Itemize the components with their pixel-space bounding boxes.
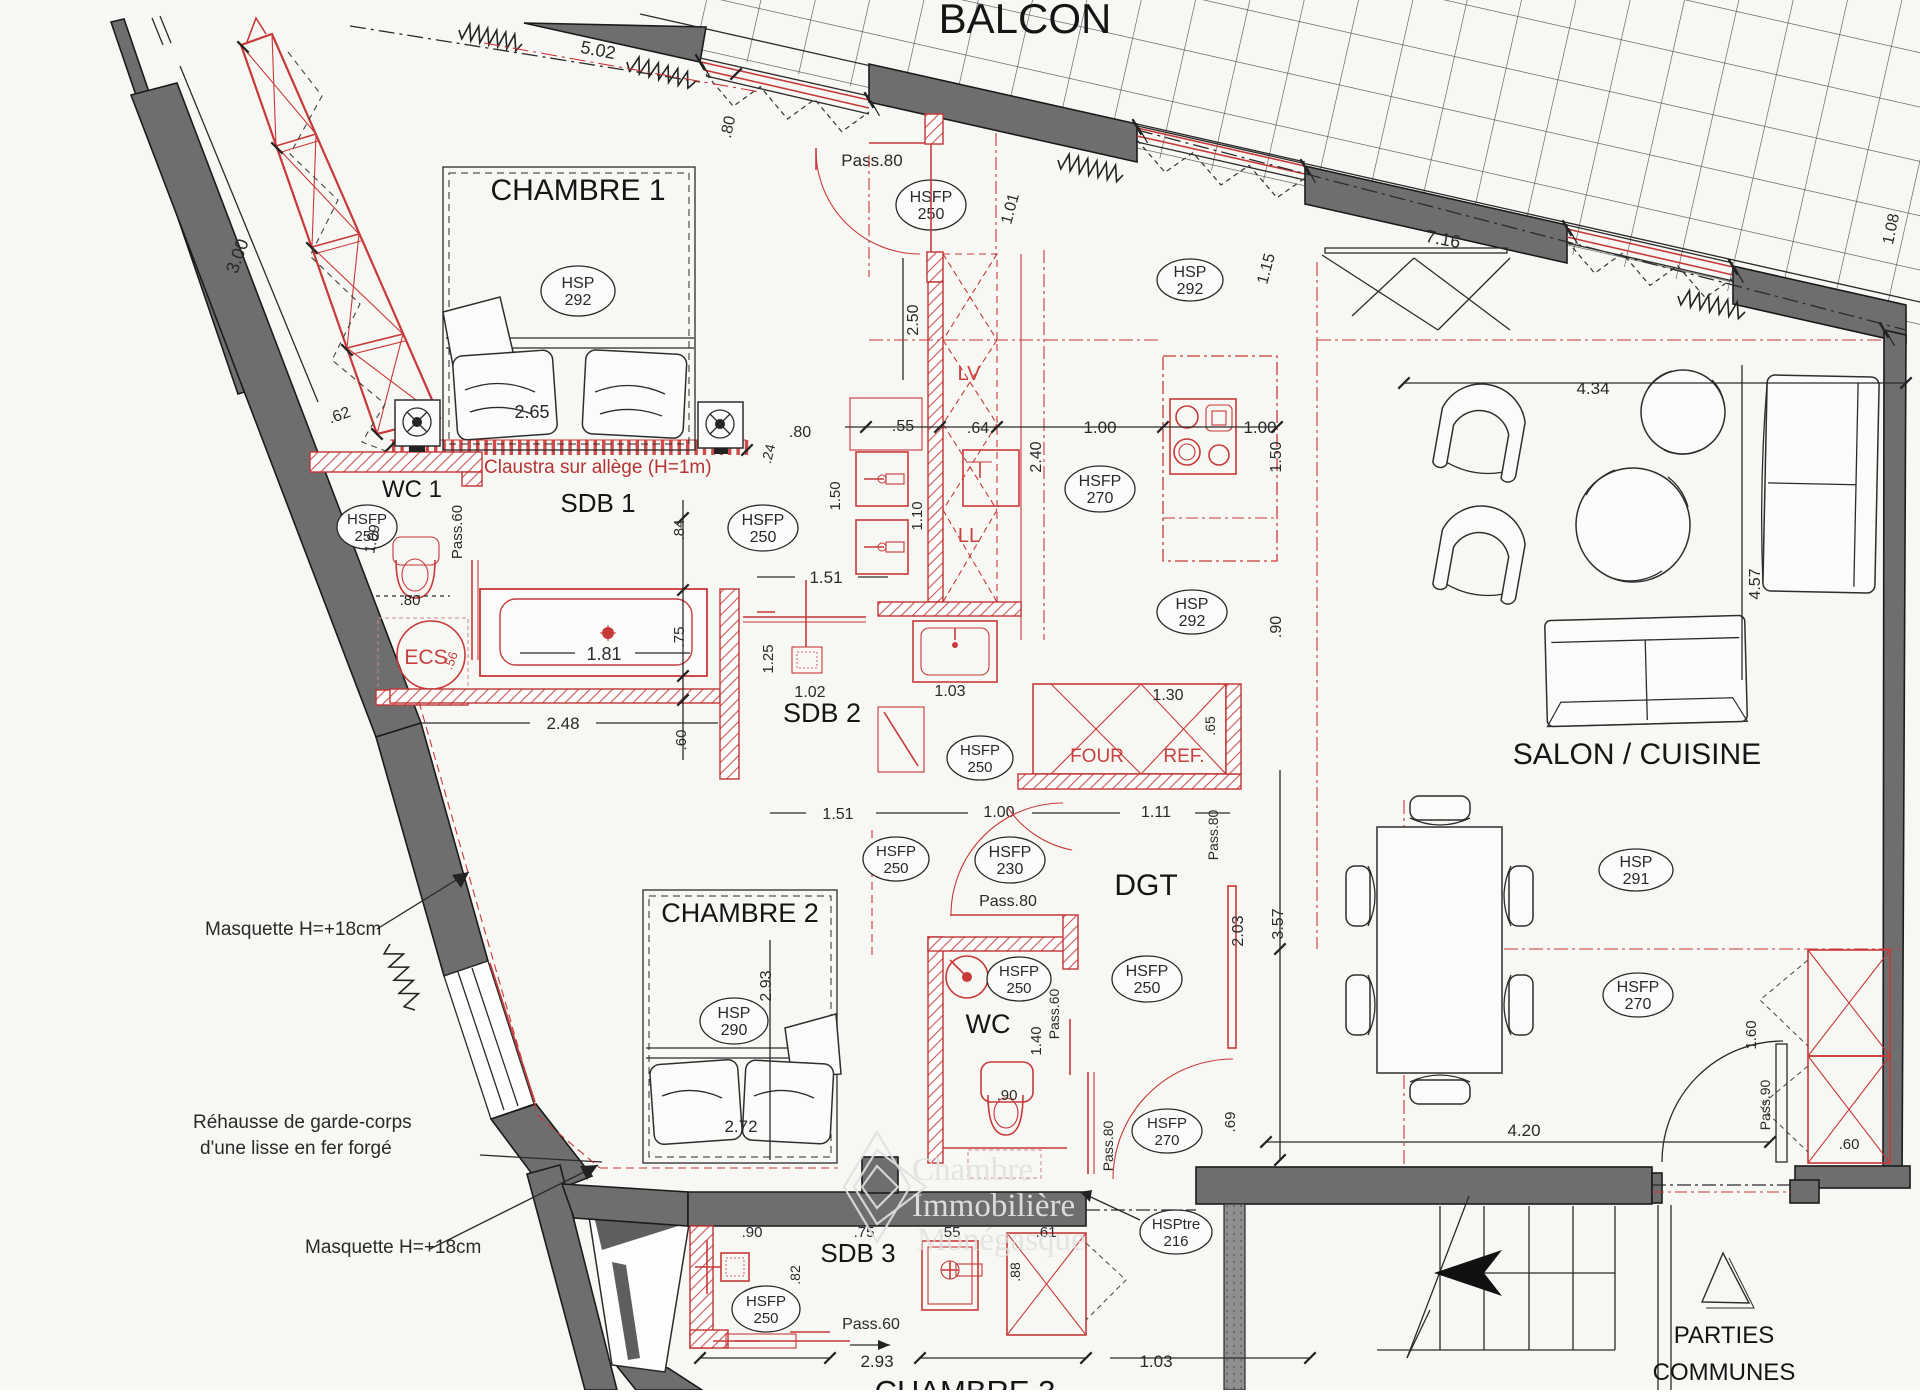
svg-text:HSPtre: HSPtre — [1152, 1216, 1200, 1233]
svg-text:4.57: 4.57 — [1747, 568, 1764, 599]
svg-text:1.50: 1.50 — [827, 481, 844, 510]
svg-text:2.93: 2.93 — [758, 970, 775, 1001]
svg-text:HSFP: HSFP — [1617, 979, 1660, 996]
svg-text:1.81: 1.81 — [586, 644, 621, 664]
svg-text:FOUR: FOUR — [1070, 746, 1124, 767]
svg-text:HSFP: HSFP — [999, 963, 1039, 980]
svg-text:250: 250 — [883, 860, 908, 877]
svg-text:.69: .69 — [1222, 1112, 1239, 1133]
svg-text:292: 292 — [565, 292, 592, 309]
svg-text:1.11: 1.11 — [1141, 804, 1171, 821]
svg-text:4.34: 4.34 — [1576, 379, 1609, 398]
svg-text:Pass.80: Pass.80 — [841, 151, 902, 170]
svg-text:HSFP: HSFP — [1147, 1115, 1187, 1132]
svg-text:HSP: HSP — [562, 275, 595, 292]
svg-text:1.25: 1.25 — [760, 644, 777, 673]
svg-text:CHAMBRE 1: CHAMBRE 1 — [490, 174, 665, 207]
svg-text:COMMUNES: COMMUNES — [1653, 1359, 1796, 1386]
svg-text:Immobilière: Immobilière — [912, 1188, 1075, 1224]
svg-text:1.03: 1.03 — [934, 683, 965, 700]
svg-text:Monégasque: Monégasque — [917, 1222, 1086, 1258]
svg-text:CHAMBRE 2: CHAMBRE 2 — [661, 898, 819, 928]
svg-text:.75: .75 — [671, 627, 688, 648]
svg-text:.90: .90 — [997, 1087, 1018, 1104]
svg-text:WC: WC — [966, 1009, 1011, 1039]
svg-text:SDB 1: SDB 1 — [560, 488, 635, 518]
svg-text:2.50: 2.50 — [905, 304, 922, 335]
svg-text:2.40: 2.40 — [1028, 441, 1045, 472]
svg-text:292: 292 — [1179, 613, 1206, 630]
svg-text:Pass.60: Pass.60 — [449, 505, 466, 559]
svg-text:.90: .90 — [742, 1224, 763, 1241]
svg-text:.88: .88 — [1007, 1262, 1023, 1282]
svg-text:1.40: 1.40 — [1028, 1026, 1045, 1055]
svg-text:REF.: REF. — [1163, 746, 1204, 767]
svg-text:1.03: 1.03 — [1139, 1352, 1172, 1371]
svg-text:HSFP: HSFP — [1126, 963, 1169, 980]
svg-text:Chambre: Chambre — [912, 1152, 1033, 1188]
svg-text:292: 292 — [1177, 281, 1204, 298]
svg-text:1.51: 1.51 — [822, 806, 853, 823]
svg-text:HSFP: HSFP — [746, 1293, 786, 1310]
svg-text:Réhausse de garde-corps: Réhausse de garde-corps — [193, 1112, 412, 1133]
svg-text:250: 250 — [1006, 980, 1031, 997]
svg-text:LL: LL — [958, 525, 980, 547]
svg-text:216: 216 — [1163, 1233, 1188, 1250]
svg-text:Pass.60: Pass.60 — [1046, 988, 1062, 1039]
svg-text:Pass.80: Pass.80 — [1205, 809, 1221, 860]
svg-text:2.72: 2.72 — [724, 1117, 757, 1136]
svg-text:HSFP: HSFP — [876, 843, 916, 860]
svg-text:SDB 3: SDB 3 — [820, 1238, 895, 1268]
svg-text:Pass.60: Pass.60 — [842, 1316, 900, 1333]
svg-text:HSFP: HSFP — [960, 742, 1000, 759]
svg-text:2.65: 2.65 — [514, 402, 549, 422]
svg-text:HSP: HSP — [718, 1005, 751, 1022]
svg-text:250: 250 — [750, 529, 777, 546]
svg-text:4.20: 4.20 — [1507, 1121, 1540, 1140]
svg-text:.64: .64 — [967, 420, 989, 437]
svg-text:Claustra sur allège (H=1m): Claustra sur allège (H=1m) — [484, 457, 712, 478]
svg-text:290: 290 — [721, 1022, 748, 1039]
svg-text:.65: .65 — [1202, 716, 1218, 736]
svg-text:250: 250 — [753, 1310, 778, 1327]
svg-text:PARTIES: PARTIES — [1674, 1322, 1774, 1349]
svg-text:Pass.80: Pass.80 — [979, 893, 1037, 910]
svg-text:HSFP: HSFP — [989, 844, 1032, 861]
svg-text:HSFP: HSFP — [742, 512, 785, 529]
svg-text:1.51: 1.51 — [809, 568, 842, 587]
svg-text:270: 270 — [1154, 1132, 1179, 1149]
svg-text:2.03: 2.03 — [1230, 915, 1247, 946]
svg-text:250: 250 — [967, 759, 992, 776]
svg-text:HSFP: HSFP — [1079, 473, 1122, 490]
svg-text:.82: .82 — [787, 1265, 803, 1285]
svg-text:CHAMBRE 3: CHAMBRE 3 — [875, 1374, 1056, 1390]
svg-text:.60: .60 — [673, 730, 690, 751]
svg-text:291: 291 — [1623, 871, 1650, 888]
svg-text:HSP: HSP — [1620, 854, 1653, 871]
svg-text:2.48: 2.48 — [546, 714, 579, 733]
svg-text:Masquette H=+18cm: Masquette H=+18cm — [205, 919, 381, 940]
svg-text:250: 250 — [1134, 980, 1161, 997]
svg-text:.80: .80 — [400, 592, 421, 609]
svg-text:BALCON: BALCON — [939, 0, 1112, 42]
svg-text:270: 270 — [1087, 490, 1114, 507]
svg-text:1.50: 1.50 — [1268, 441, 1285, 472]
svg-text:2.93: 2.93 — [860, 1352, 893, 1371]
svg-text:.80: .80 — [789, 424, 811, 441]
svg-text:1.10: 1.10 — [909, 501, 926, 530]
svg-text:1.00: 1.00 — [983, 804, 1014, 821]
svg-text:SDB 2: SDB 2 — [783, 698, 861, 728]
svg-text:LV: LV — [958, 363, 982, 385]
svg-text:.60: .60 — [1839, 1136, 1860, 1153]
svg-text:HSP: HSP — [1174, 264, 1207, 281]
svg-text:WC 1: WC 1 — [382, 476, 442, 503]
svg-text:SALON / CUISINE: SALON / CUISINE — [1513, 738, 1761, 771]
svg-text:d'une lisse en fer forgé: d'une lisse en fer forgé — [200, 1138, 392, 1159]
svg-text:1.30: 1.30 — [1152, 687, 1183, 704]
svg-text:DGT: DGT — [1114, 869, 1177, 902]
svg-text:3.57: 3.57 — [1270, 908, 1287, 939]
svg-text:.90: .90 — [1268, 616, 1285, 638]
svg-text:HSP: HSP — [1176, 596, 1209, 613]
svg-text:270: 270 — [1625, 996, 1652, 1013]
svg-text:Pass.90: Pass.90 — [1757, 1079, 1773, 1130]
svg-text:Masquette H=+18cm: Masquette H=+18cm — [305, 1237, 481, 1258]
svg-text:230: 230 — [997, 861, 1024, 878]
